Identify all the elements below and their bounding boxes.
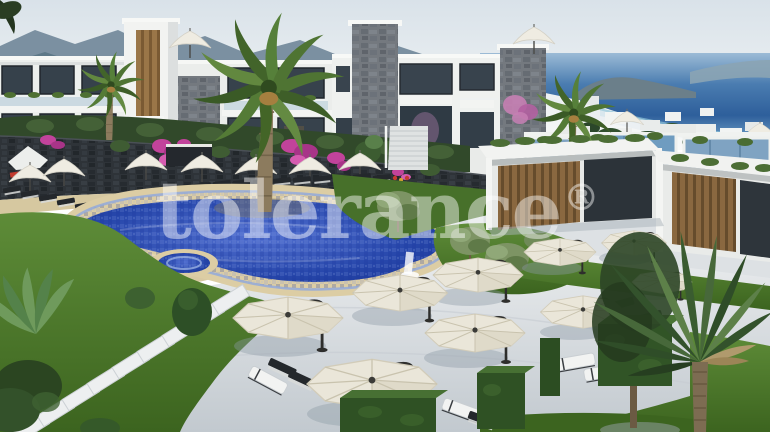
balcony-glass	[0, 97, 122, 106]
wood-slat-wall	[498, 161, 580, 230]
wood-facade-panel	[136, 30, 160, 116]
scene-illustration	[0, 0, 770, 432]
pavilion-glass	[584, 156, 652, 222]
resort-architectural-render: tolerance®	[0, 0, 770, 432]
